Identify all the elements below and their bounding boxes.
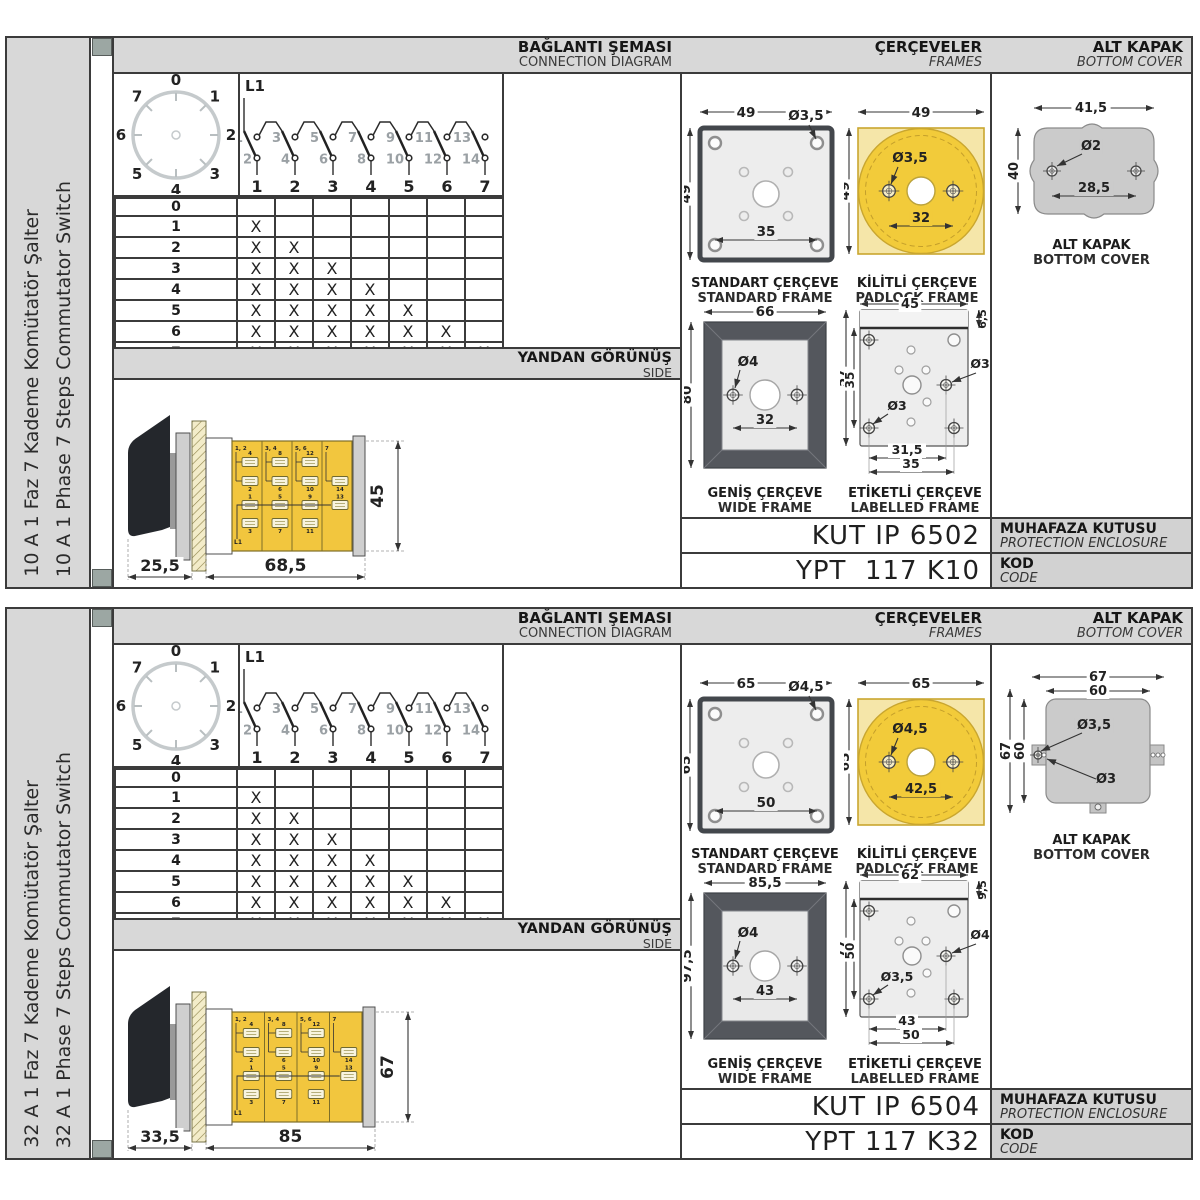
product-code: YPT 117 K10 — [682, 554, 980, 587]
svg-text:13: 13 — [336, 495, 344, 501]
svg-text:6,5: 6,5 — [976, 309, 989, 329]
svg-text:8: 8 — [282, 1022, 286, 1028]
product-title-english: 32 A 1 Phase 7 Steps Commutator Switch — [55, 752, 74, 1148]
svg-text:67: 67 — [999, 742, 1014, 760]
enclosure-code-row: KUT IP 6502 MUHAFAZA KUTUSU PROTECTION E… — [682, 517, 1191, 552]
svg-text:11: 11 — [415, 131, 433, 146]
svg-text:Ø3,5: Ø3,5 — [881, 969, 914, 984]
svg-text:9: 9 — [314, 1066, 318, 1072]
svg-text:11: 11 — [306, 529, 314, 535]
svg-text:6: 6 — [116, 126, 126, 144]
svg-text:43: 43 — [756, 984, 774, 999]
svg-text:Ø2: Ø2 — [1081, 139, 1101, 154]
svg-text:14: 14 — [345, 1058, 353, 1064]
header-side-view: YANDAN GÖRÜNÜŞ SIDE — [114, 918, 680, 951]
svg-text:45: 45 — [368, 484, 388, 508]
svg-text:5, 6: 5, 6 — [300, 1017, 312, 1023]
svg-text:35: 35 — [902, 456, 919, 471]
svg-text:4: 4 — [171, 752, 181, 765]
svg-text:68,5: 68,5 — [265, 556, 307, 576]
svg-text:7: 7 — [325, 446, 329, 452]
header-bottom-cover: ALT KAPAK BOTTOM COVER — [992, 610, 1191, 642]
bottom-cover-drawing: 67606760Ø3,5Ø3 — [994, 669, 1189, 831]
svg-text:1: 1 — [249, 1066, 253, 1072]
labelled-frame-drawing: 456,55735Ø3Ø331,535 — [840, 296, 990, 484]
svg-text:6: 6 — [441, 748, 452, 766]
header-frames: ÇERÇEVELER FRAMES — [682, 39, 990, 71]
svg-text:4: 4 — [365, 177, 376, 195]
enclosure-code-label: MUHAFAZA KUTUSU PROTECTION ENCLOSURE — [992, 1090, 1191, 1123]
enclosure-code-label: MUHAFAZA KUTUSU PROTECTION ENCLOSURE — [992, 519, 1191, 552]
svg-text:Ø3: Ø3 — [887, 398, 906, 413]
svg-text:41,5: 41,5 — [1075, 101, 1107, 116]
corner-mark — [92, 609, 112, 627]
svg-text:6: 6 — [282, 1058, 286, 1064]
svg-text:2: 2 — [243, 153, 252, 168]
svg-text:10: 10 — [386, 153, 404, 168]
svg-text:7: 7 — [132, 87, 142, 105]
svg-text:7: 7 — [333, 1017, 337, 1023]
svg-text:14: 14 — [462, 153, 480, 168]
svg-text:13: 13 — [453, 702, 471, 717]
svg-text:43: 43 — [898, 1013, 915, 1028]
svg-text:7: 7 — [282, 1100, 286, 1106]
frames-column: 49Ø3,54935 STANDART ÇERÇEVESTANDARD FRAM… — [682, 74, 990, 517]
header-connection-diagram: BAĞLANTI ŞEMASI CONNECTION DIAGRAM — [114, 610, 680, 642]
svg-text:7: 7 — [479, 748, 490, 766]
svg-text:66: 66 — [756, 304, 775, 320]
svg-text:45: 45 — [901, 297, 919, 312]
connection-circuit-diagram: L112134256378491051112613147 — [240, 74, 504, 197]
svg-text:L1: L1 — [234, 1110, 242, 1117]
svg-text:10: 10 — [386, 724, 404, 739]
svg-text:13: 13 — [453, 131, 471, 146]
svg-text:14: 14 — [462, 724, 480, 739]
wide-frame-figure: Ø44385,597,5 GENİŞ ÇERÇEVEWIDE FRAME — [684, 875, 846, 1087]
svg-text:2: 2 — [226, 697, 236, 715]
svg-text:60: 60 — [1089, 684, 1107, 699]
step-contact-table: 01X2XX3XXX4XXXX5XXXXX6XXXXXX7XXXXXXX — [114, 197, 504, 347]
product-title-turkish: 10 A 1 Faz 7 Kademe Komütatör Şalter — [23, 209, 42, 577]
svg-text:85: 85 — [279, 1127, 303, 1147]
svg-text:67: 67 — [378, 1055, 398, 1079]
svg-text:49: 49 — [844, 182, 853, 201]
svg-text:3, 4: 3, 4 — [265, 446, 277, 452]
corner-mark — [92, 1140, 112, 1158]
bottom-cover-column: 67606760Ø3,5Ø3 ALT KAPAKBOTTOM COVER — [992, 645, 1191, 1088]
svg-text:5: 5 — [310, 131, 319, 146]
corner-mark — [92, 38, 112, 56]
svg-text:Ø3: Ø3 — [1096, 772, 1116, 787]
svg-text:11: 11 — [415, 702, 433, 717]
section-header-bar: BAĞLANTI ŞEMASI CONNECTION DIAGRAM ÇERÇE… — [114, 609, 1191, 645]
svg-text:3: 3 — [272, 131, 281, 146]
svg-text:2: 2 — [243, 724, 252, 739]
svg-text:10: 10 — [306, 487, 314, 493]
svg-text:9,5: 9,5 — [976, 880, 989, 900]
svg-text:1: 1 — [251, 748, 262, 766]
svg-text:Ø4: Ø4 — [738, 354, 759, 370]
svg-text:4: 4 — [171, 181, 181, 194]
svg-text:5: 5 — [282, 1066, 286, 1072]
svg-text:Ø3,5: Ø3,5 — [892, 150, 927, 166]
svg-text:3: 3 — [272, 702, 281, 717]
svg-text:8: 8 — [278, 451, 282, 457]
svg-text:5: 5 — [403, 748, 414, 766]
svg-text:49: 49 — [737, 105, 756, 121]
wide-frame-drawing: Ø44385,597,5 — [684, 875, 846, 1055]
svg-text:80: 80 — [684, 386, 695, 405]
standard-frame-drawing: 49Ø3,54935 — [684, 102, 846, 274]
svg-text:Ø4,5: Ø4,5 — [892, 721, 927, 737]
svg-text:50: 50 — [757, 795, 776, 811]
svg-text:1: 1 — [240, 131, 243, 146]
svg-text:3: 3 — [248, 529, 252, 535]
svg-text:65: 65 — [684, 756, 694, 775]
bottom-cover-column: 41,540Ø228,5 ALT KAPAKBOTTOM COVER — [992, 74, 1191, 517]
svg-text:7: 7 — [348, 131, 357, 146]
section-header-bar: BAĞLANTI ŞEMASI CONNECTION DIAGRAM ÇERÇE… — [114, 38, 1191, 74]
svg-text:35: 35 — [843, 372, 857, 389]
svg-text:11: 11 — [312, 1100, 320, 1106]
svg-text:1, 2: 1, 2 — [235, 446, 247, 452]
svg-text:1: 1 — [251, 177, 262, 195]
svg-text:Ø4,5: Ø4,5 — [788, 679, 823, 695]
svg-text:14: 14 — [336, 487, 344, 493]
svg-text:6: 6 — [319, 153, 328, 168]
svg-text:6: 6 — [441, 177, 452, 195]
svg-text:3: 3 — [327, 177, 338, 195]
labelled-frame-figure: 629,57750Ø4Ø3,54350 ETİKETLİ ÇERÇEVELABE… — [840, 867, 990, 1087]
labelled-frame-drawing: 629,57750Ø4Ø3,54350 — [840, 867, 990, 1055]
svg-text:49: 49 — [684, 185, 694, 204]
svg-text:Ø3,5: Ø3,5 — [788, 108, 823, 124]
header-connection-diagram: BAĞLANTI ŞEMASI CONNECTION DIAGRAM — [114, 39, 680, 71]
svg-text:0: 0 — [171, 645, 181, 660]
svg-text:4: 4 — [248, 451, 252, 457]
svg-text:7: 7 — [278, 529, 282, 535]
padlock-frame-drawing: 6565Ø4,542,5 — [844, 673, 990, 845]
standard-frame-drawing: 65Ø4,56550 — [684, 673, 846, 845]
bottom-cover-figure: 67606760Ø3,5Ø3 ALT KAPAKBOTTOM COVER — [994, 669, 1189, 863]
svg-text:12: 12 — [306, 451, 314, 457]
product-panel-10a: 10 A 1 Faz 7 Kademe Komütatör Şalter 10 … — [5, 36, 1193, 589]
svg-text:5: 5 — [278, 495, 282, 501]
svg-text:L1: L1 — [245, 648, 265, 666]
svg-text:2: 2 — [226, 126, 236, 144]
svg-text:35: 35 — [757, 224, 776, 240]
svg-text:6: 6 — [319, 724, 328, 739]
svg-text:6: 6 — [116, 697, 126, 715]
standard-frame-figure: 65Ø4,56550 STANDART ÇERÇEVESTANDARD FRAM… — [684, 673, 846, 877]
wide-frame-drawing: Ø4326680 — [684, 304, 846, 484]
enclosure-code: KUT IP 6504 — [682, 1090, 980, 1123]
svg-text:3: 3 — [210, 736, 220, 754]
header-side-view: YANDAN GÖRÜNÜŞ SIDE — [114, 347, 680, 380]
svg-text:0: 0 — [171, 74, 181, 89]
svg-text:6: 6 — [278, 487, 282, 493]
svg-text:1: 1 — [240, 702, 243, 717]
rotary-position-dial: 01234567 — [114, 74, 240, 197]
svg-text:10: 10 — [312, 1058, 320, 1064]
product-code-label: KOD CODE — [992, 1125, 1191, 1158]
frames-column: 65Ø4,56550 STANDART ÇERÇEVESTANDARD FRAM… — [682, 645, 990, 1088]
product-panel-32a: 32 A 1 Faz 7 Kademe Komütatör Şalter 32 … — [5, 607, 1193, 1160]
svg-text:2: 2 — [289, 748, 300, 766]
wide-frame-figure: Ø4326680 GENİŞ ÇERÇEVEWIDE FRAME — [684, 304, 846, 516]
bottom-cover-figure: 41,540Ø228,5 ALT KAPAKBOTTOM COVER — [994, 98, 1189, 268]
svg-text:12: 12 — [424, 153, 442, 168]
svg-text:32: 32 — [912, 211, 930, 226]
product-title-turkish: 32 A 1 Faz 7 Kademe Komütatör Şalter — [23, 780, 42, 1148]
svg-text:7: 7 — [132, 658, 142, 676]
svg-text:4: 4 — [249, 1022, 253, 1028]
svg-text:49: 49 — [912, 105, 931, 121]
svg-text:65: 65 — [737, 676, 756, 692]
svg-text:85,5: 85,5 — [748, 875, 781, 891]
svg-text:5: 5 — [132, 165, 142, 183]
header-frames: ÇERÇEVELER FRAMES — [682, 610, 990, 642]
svg-text:65: 65 — [912, 676, 931, 692]
svg-text:5: 5 — [310, 702, 319, 717]
product-code: YPT 117 K32 — [682, 1125, 980, 1158]
enclosure-code: KUT IP 6502 — [682, 519, 980, 552]
svg-text:9: 9 — [386, 131, 395, 146]
product-code-row: YPT 117 K32 KOD CODE — [682, 1123, 1191, 1158]
svg-text:5, 6: 5, 6 — [295, 446, 307, 452]
svg-text:9: 9 — [386, 702, 395, 717]
padlock-frame-figure: 4949Ø3,532 KİLİTLİ ÇERÇEVEPADLOCK FRAME — [844, 102, 990, 306]
svg-text:Ø4: Ø4 — [738, 925, 759, 941]
connection-circuit-diagram: L112134256378491051112613147 — [240, 645, 504, 768]
svg-text:60: 60 — [1013, 742, 1028, 760]
svg-text:7: 7 — [479, 177, 490, 195]
svg-text:33,5: 33,5 — [140, 1127, 179, 1146]
product-title-sidebar: 32 A 1 Faz 7 Kademe Komütatör Şalter 32 … — [7, 609, 91, 1158]
svg-text:50: 50 — [902, 1027, 920, 1042]
svg-text:4: 4 — [281, 724, 290, 739]
svg-text:Ø4: Ø4 — [970, 927, 990, 942]
svg-text:28,5: 28,5 — [1078, 181, 1110, 196]
header-bottom-cover: ALT KAPAK BOTTOM COVER — [992, 39, 1191, 71]
svg-text:42,5: 42,5 — [905, 782, 937, 797]
svg-text:5: 5 — [132, 736, 142, 754]
labelled-frame-figure: 456,55735Ø3Ø331,535 ETİKETLİ ÇERÇEVELABE… — [840, 296, 990, 516]
product-title-sidebar: 10 A 1 Faz 7 Kademe Komütatör Şalter 10 … — [7, 38, 91, 587]
svg-text:97,5: 97,5 — [684, 949, 695, 982]
step-contact-table: 01X2XX3XXX4XXXX5XXXXX6XXXXXX7XXXXXXX — [114, 768, 504, 918]
svg-text:67: 67 — [1089, 670, 1107, 685]
svg-text:3: 3 — [249, 1100, 253, 1106]
svg-text:50: 50 — [843, 943, 857, 960]
svg-text:12: 12 — [312, 1022, 320, 1028]
svg-text:L1: L1 — [245, 77, 265, 95]
padlock-frame-drawing: 4949Ø3,532 — [844, 102, 990, 274]
svg-text:L1: L1 — [234, 539, 242, 546]
svg-text:4: 4 — [281, 153, 290, 168]
svg-text:12: 12 — [424, 724, 442, 739]
svg-text:1: 1 — [210, 658, 220, 676]
svg-text:3, 4: 3, 4 — [268, 1017, 280, 1023]
svg-text:13: 13 — [345, 1066, 353, 1072]
svg-text:9: 9 — [308, 495, 312, 501]
svg-text:65: 65 — [844, 753, 853, 772]
svg-text:62: 62 — [901, 868, 919, 883]
svg-text:31,5: 31,5 — [892, 442, 923, 457]
svg-text:4: 4 — [365, 748, 376, 766]
svg-text:40: 40 — [1007, 162, 1022, 180]
svg-text:2: 2 — [249, 1058, 253, 1064]
svg-text:1, 2: 1, 2 — [235, 1017, 247, 1023]
svg-text:2: 2 — [248, 487, 252, 493]
svg-text:32: 32 — [756, 413, 774, 428]
bottom-cover-drawing: 41,540Ø228,5 — [994, 98, 1189, 236]
product-title-english: 10 A 1 Phase 7 Steps Commutator Switch — [55, 181, 74, 577]
svg-text:25,5: 25,5 — [140, 556, 179, 575]
svg-text:2: 2 — [289, 177, 300, 195]
product-code-label: KOD CODE — [992, 554, 1191, 587]
standard-frame-figure: 49Ø3,54935 STANDART ÇERÇEVESTANDARD FRAM… — [684, 102, 846, 306]
svg-text:1: 1 — [248, 495, 252, 501]
svg-text:Ø3,5: Ø3,5 — [1077, 718, 1111, 733]
svg-text:5: 5 — [403, 177, 414, 195]
side-view-drawing: 1, 242133, 486575, 6121091171413L125,568… — [114, 381, 680, 585]
svg-text:1: 1 — [210, 87, 220, 105]
svg-text:Ø3: Ø3 — [970, 356, 989, 371]
corner-mark — [92, 569, 112, 587]
svg-text:8: 8 — [357, 153, 366, 168]
svg-text:8: 8 — [357, 724, 366, 739]
svg-text:3: 3 — [210, 165, 220, 183]
padlock-frame-figure: 6565Ø4,542,5 KİLİTLİ ÇERÇEVEPADLOCK FRAM… — [844, 673, 990, 877]
enclosure-code-row: KUT IP 6504 MUHAFAZA KUTUSU PROTECTION E… — [682, 1088, 1191, 1123]
rotary-position-dial: 01234567 — [114, 645, 240, 768]
svg-text:3: 3 — [327, 748, 338, 766]
side-view-drawing: 1, 242133, 486575, 6121091171413L133,585… — [114, 952, 680, 1156]
product-code-row: YPT 117 K10 KOD CODE — [682, 552, 1191, 587]
svg-text:7: 7 — [348, 702, 357, 717]
